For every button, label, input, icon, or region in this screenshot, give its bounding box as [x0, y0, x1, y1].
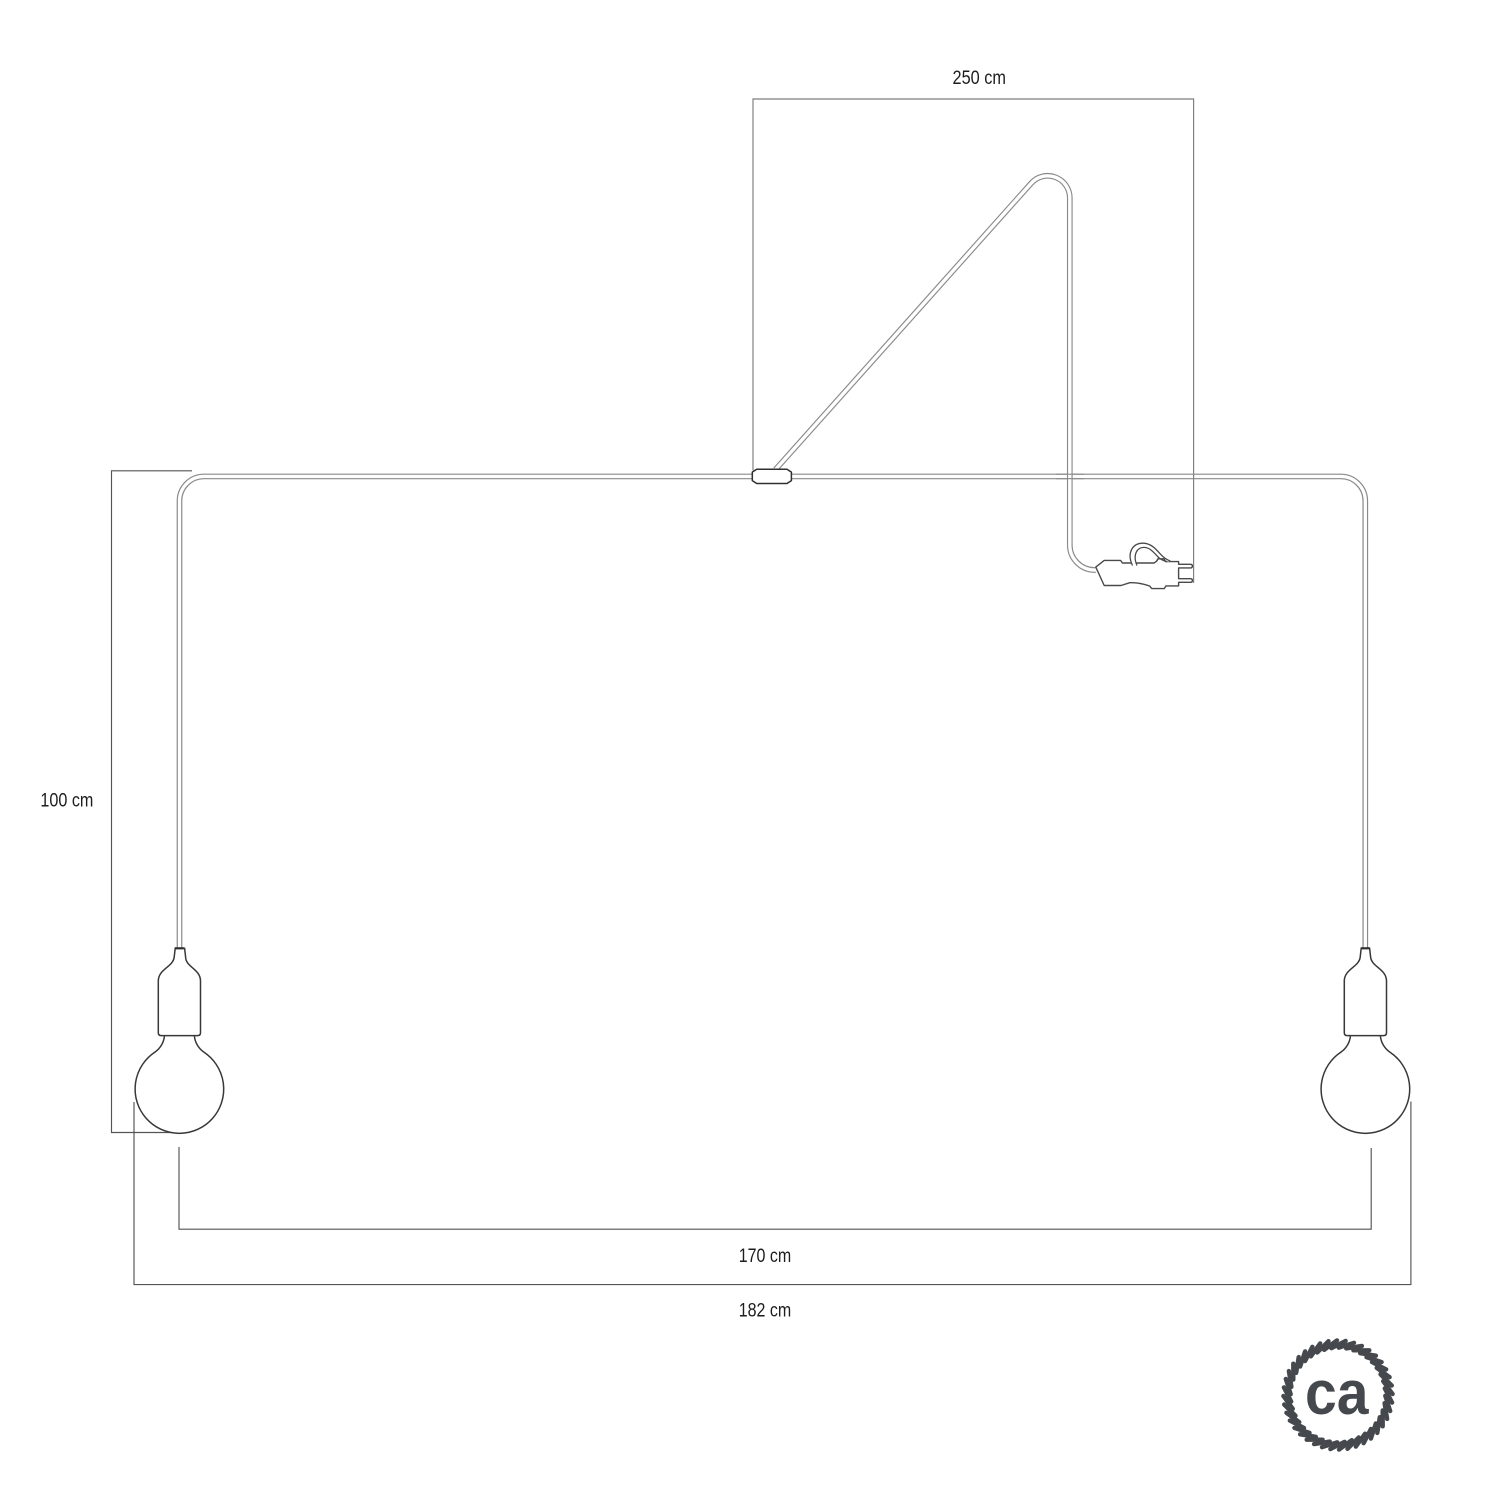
svg-text:ca: ca — [1305, 1359, 1369, 1428]
svg-text:170 cm: 170 cm — [739, 1245, 792, 1267]
svg-text:100 cm: 100 cm — [40, 790, 93, 812]
svg-text:250 cm: 250 cm — [953, 67, 1007, 89]
svg-text:182 cm: 182 cm — [739, 1299, 792, 1321]
